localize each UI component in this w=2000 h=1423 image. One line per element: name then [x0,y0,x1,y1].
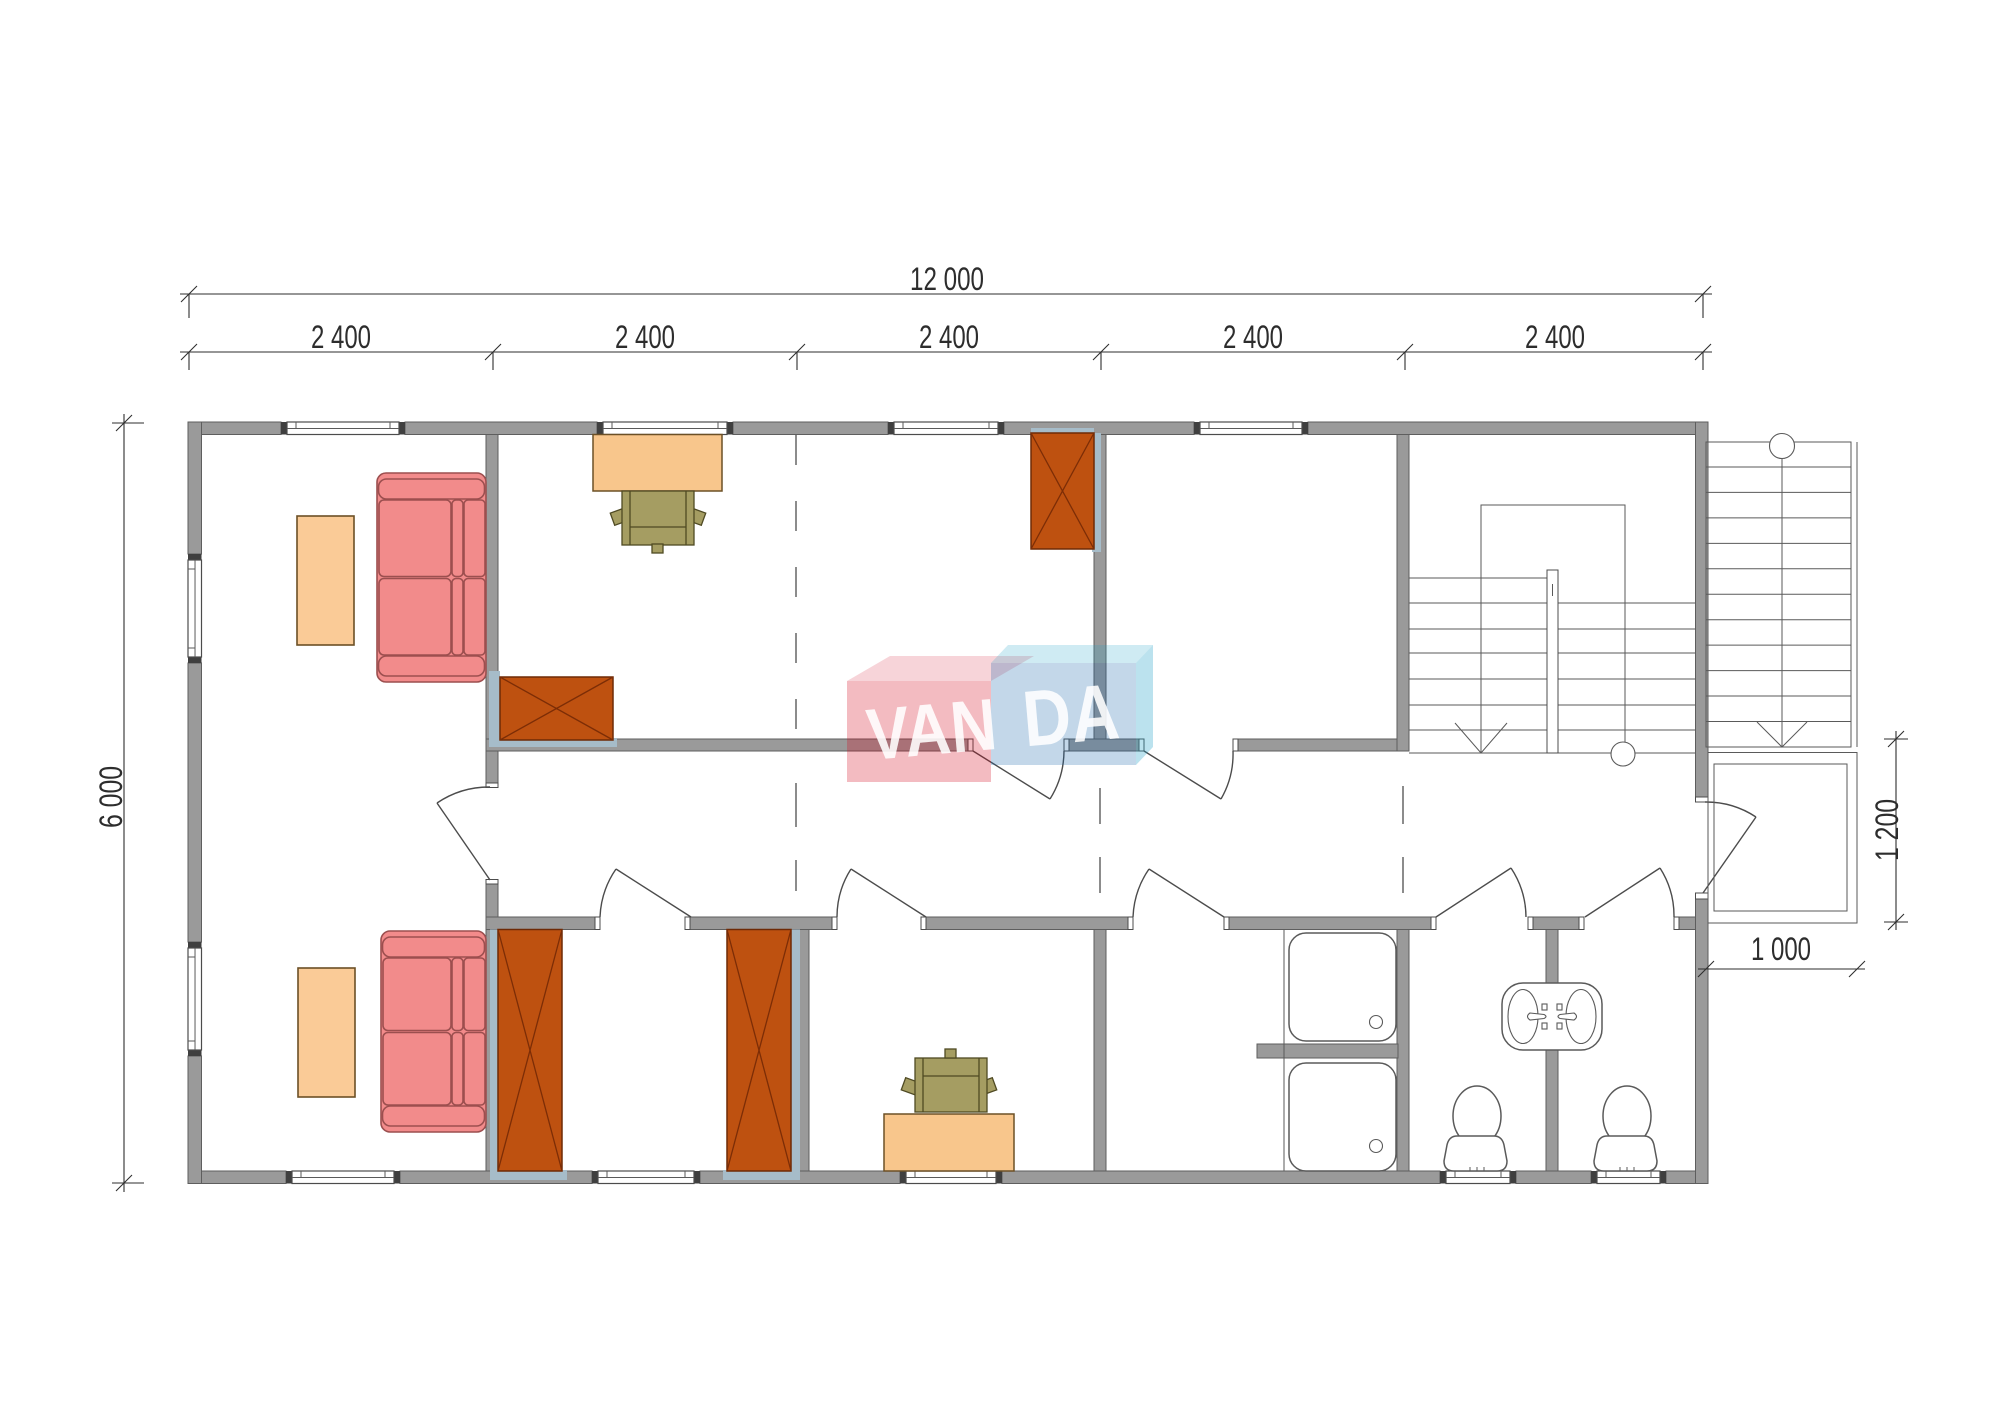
svg-text:6 000: 6 000 [93,766,129,828]
svg-text:VAN: VAN [863,684,1000,776]
svg-text:2 400: 2 400 [1223,319,1283,355]
svg-text:12 000: 12 000 [910,261,984,297]
svg-text:2 400: 2 400 [311,319,371,355]
svg-text:2 400: 2 400 [1525,319,1585,355]
svg-text:1 000: 1 000 [1751,931,1811,967]
svg-text:1 200: 1 200 [1869,799,1905,861]
svg-text:2 400: 2 400 [615,319,675,355]
svg-text:2 400: 2 400 [919,319,979,355]
svg-text:DA: DA [1019,666,1122,763]
